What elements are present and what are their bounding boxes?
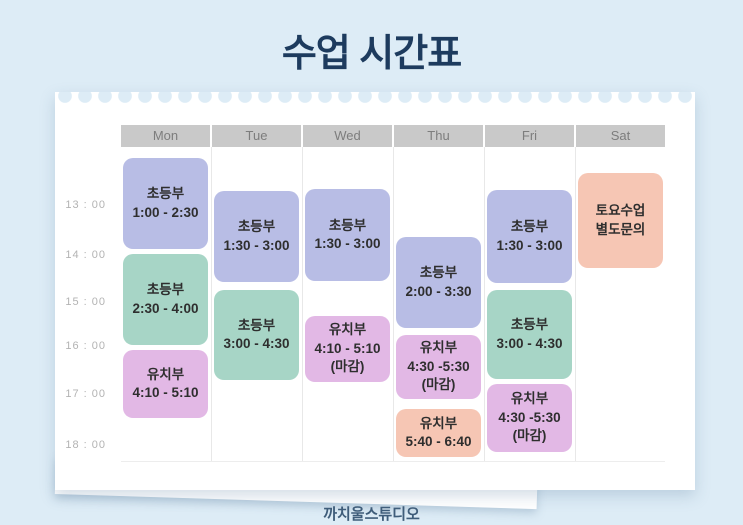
class-block-tue-3: 초등부1:30 - 3:00 (214, 191, 299, 282)
class-block-text: 초등부 (238, 317, 275, 336)
class-block-text: 초등부 (329, 217, 366, 236)
class-block-text: 1:30 - 3:00 (496, 237, 562, 256)
day-header-tue: Tue (212, 125, 301, 147)
class-block-text: 유치부 (420, 339, 457, 358)
class-block-thu-8: 유치부4:30 -5:30(마감) (396, 335, 481, 399)
studio-name: 까치울스튜디오 (0, 503, 743, 524)
class-block-text: 2:00 - 3:30 (405, 283, 471, 302)
day-header-thu: Thu (394, 125, 483, 147)
class-block-text: 5:40 - 6:40 (405, 433, 471, 452)
class-block-fri-11: 초등부3:00 - 4:30 (487, 290, 572, 379)
class-block-text: 1:30 - 3:00 (314, 235, 380, 254)
class-block-text: (마감) (331, 358, 365, 377)
class-block-text: 초등부 (511, 218, 548, 237)
class-block-text: 토요수업 (596, 202, 646, 221)
class-block-text: 4:30 -5:30 (407, 358, 469, 377)
table-bottom-line (121, 461, 665, 462)
class-block-mon-2: 유치부4:10 - 5:10 (123, 350, 208, 418)
time-label: 18 : 00 (56, 439, 106, 455)
class-block-text: (마감) (422, 376, 456, 395)
column-separator (302, 147, 303, 462)
day-header-wed: Wed (303, 125, 392, 147)
class-block-text: 유치부 (511, 390, 548, 409)
day-header-fri: Fri (485, 125, 574, 147)
class-block-text: 유치부 (147, 366, 184, 385)
class-block-text: 초등부 (238, 218, 275, 237)
class-block-text: 별도문의 (596, 221, 646, 240)
class-block-tue-4: 초등부3:00 - 4:30 (214, 290, 299, 380)
class-block-text: 3:00 - 4:30 (223, 335, 289, 354)
class-block-text: 초등부 (147, 185, 184, 204)
class-block-text: 유치부 (420, 415, 457, 434)
class-block-thu-7: 초등부2:00 - 3:30 (396, 237, 481, 328)
column-separator (484, 147, 485, 462)
class-block-wed-5: 초등부1:30 - 3:00 (305, 189, 390, 281)
class-block-wed-6: 유치부4:10 - 5:10(마감) (305, 316, 390, 382)
class-block-text: 초등부 (420, 264, 457, 283)
class-block-mon-0: 초등부1:00 - 2:30 (123, 158, 208, 249)
time-label: 14 : 00 (56, 249, 106, 265)
schedule-grid: MonTueWedThuFriSat13 : 0014 : 0015 : 001… (0, 0, 743, 525)
time-label: 17 : 00 (56, 388, 106, 404)
class-block-text: 2:30 - 4:00 (132, 300, 198, 319)
column-separator (575, 147, 576, 462)
class-block-text: 4:10 - 5:10 (314, 340, 380, 359)
day-header-sat: Sat (576, 125, 665, 147)
class-block-text: 4:30 -5:30 (498, 409, 560, 428)
class-block-sat-13: 토요수업별도문의 (578, 173, 663, 268)
time-label: 15 : 00 (56, 296, 106, 312)
class-block-mon-1: 초등부2:30 - 4:00 (123, 254, 208, 345)
column-separator (393, 147, 394, 462)
class-block-fri-12: 유치부4:30 -5:30(마감) (487, 384, 572, 452)
class-block-text: 3:00 - 4:30 (496, 335, 562, 354)
page: 수업 시간표 MonTueWedThuFriSat13 : 0014 : 001… (0, 0, 743, 525)
day-header-mon: Mon (121, 125, 210, 147)
class-block-fri-10: 초등부1:30 - 3:00 (487, 190, 572, 283)
class-block-text: 초등부 (511, 316, 548, 335)
class-block-text: 1:30 - 3:00 (223, 237, 289, 256)
class-block-text: (마감) (513, 427, 547, 446)
time-label: 16 : 00 (56, 340, 106, 356)
column-separator (211, 147, 212, 462)
class-block-text: 유치부 (329, 321, 366, 340)
class-block-text: 4:10 - 5:10 (132, 384, 198, 403)
class-block-text: 초등부 (147, 281, 184, 300)
time-label: 13 : 00 (56, 199, 106, 215)
class-block-thu-9: 유치부5:40 - 6:40 (396, 409, 481, 457)
class-block-text: 1:00 - 2:30 (132, 204, 198, 223)
